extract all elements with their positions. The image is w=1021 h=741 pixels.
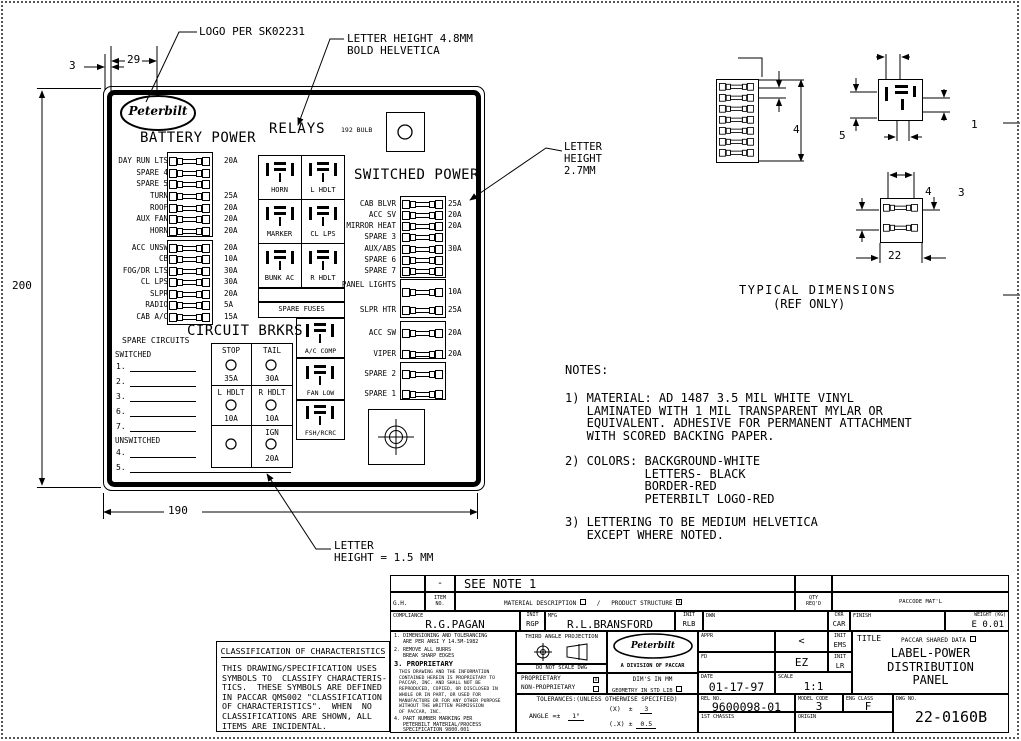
tb-paccode-cell: PACCODE MAT'L (832, 592, 1009, 611)
fuse-icon (402, 267, 443, 276)
classification-title: CLASSIFICATION OF CHARACTERISTICS (217, 647, 389, 656)
typical-dimensions-caption: TYPICAL DIMENSIONS (739, 284, 896, 297)
relay-icon (266, 249, 294, 270)
fuse-amp-label: 30A (448, 244, 462, 253)
mfg-name: R.L.BRANSFORD (546, 619, 674, 631)
spare-line (130, 371, 196, 372)
init-lr: LR (829, 663, 851, 671)
relays-header: RELAYS (269, 122, 326, 138)
see-note-text: SEE NOTE 1 (464, 578, 536, 591)
third-angle-label: THIRD ANGLE PROJECTION (517, 634, 606, 640)
letter-height-15-callout: LETTER HEIGHT = 1.5 MM (334, 540, 433, 565)
fuse-row: CAB BLVR25A (330, 199, 482, 210)
breaker-name-label: L HDLT (211, 389, 251, 397)
date-value: 01-17-97 (699, 681, 774, 694)
tb-init-cell: INITLR (828, 652, 852, 672)
product-structure-checkbox: X (676, 599, 682, 605)
ckr-label: CKR (829, 613, 849, 619)
typical-dim-label: 1 (971, 119, 978, 131)
spare-line (130, 472, 291, 473)
relay-label: BUNK AC (258, 275, 301, 283)
spare-line-number: 1. (116, 363, 126, 372)
tol-angle-value: 1° (568, 712, 584, 721)
classification-body: THIS DRAWING/SPECIFICATION USES SYMBOLS … (222, 664, 387, 731)
relay-icon (306, 322, 334, 343)
tol-x-label: (X) ± (609, 705, 632, 713)
init-ems: EMS (829, 642, 851, 650)
init-rlb: RLB (676, 621, 702, 629)
tb-projection-cell: THIRD ANGLE PROJECTION (516, 631, 607, 664)
fuse-icon (169, 227, 210, 236)
breaker-amp-label: 20A (252, 455, 292, 463)
tb-logo-cell: Peterbilt A DIVISION OF PACCAR (607, 631, 698, 673)
fd-signature: EZ (776, 657, 827, 669)
non-proprietary-label: NON-PROPRIETARY (521, 684, 575, 691)
drawing-sheet: LOGO PER SK02231 LETTER HEIGHT 4.8MM BOL… (0, 0, 1021, 741)
tb-see-note-cell: SEE NOTE 1 (455, 575, 795, 592)
tb-tolerances-cell: TOLERANCES:(UNLESS OTHERWISE SPECIFIED) … (516, 694, 698, 733)
tolerances-header: TOLERANCES:(UNLESS OTHERWISE SPECIFIED) (517, 697, 697, 704)
division-of-paccar-label: A DIVISION OF PACCAR (608, 664, 697, 670)
relay-icon (306, 404, 334, 425)
proprietary-row: PROPRIETARY (521, 676, 561, 683)
qty-reqd-label: QTY REQ'D (796, 596, 831, 607)
fuse-label: AUX FAN (104, 214, 168, 223)
item-no-label: ITEM NO. (426, 596, 454, 607)
relay-label: FAN LOW (296, 390, 345, 397)
appr-label: APPR (701, 633, 713, 639)
tb-model-cell: MODEL CODE3 (795, 694, 843, 712)
spare-line (130, 386, 196, 387)
fuse-icon (169, 180, 210, 189)
relay-icon (266, 205, 294, 226)
note-2: 2) COLORS: BACKGROUND-WHITE LETTERS- BLA… (565, 455, 775, 505)
relay-grid-divider (301, 155, 302, 288)
relay-label: FSH/RCRC (296, 430, 345, 437)
dwg-no-value: 22-0160B (894, 709, 1008, 726)
spare-line-number: 3. (116, 393, 126, 402)
tb-notes-cell: 1. DIMENSIONING AND TOLERANCING ARE PER … (390, 631, 516, 733)
spare-line-number: 2. (116, 378, 126, 387)
letter-height-48-callout: LETTER HEIGHT 4.8MM BOLD HELVETICA (347, 33, 473, 58)
first-chassis-label: 1ST CHASSIS (701, 714, 734, 720)
tb-cell (832, 575, 1009, 592)
breaker-name-label: R HDLT (252, 389, 292, 397)
relay-icon (309, 161, 337, 182)
breaker-amp-label: 10A (211, 415, 251, 423)
fuse-label: SLPR HTR (330, 305, 396, 314)
material-checkbox (580, 599, 586, 605)
tol-x-value: 3 (640, 705, 652, 714)
relay-label: A/C COMP (296, 348, 345, 355)
title-label: TITLE (857, 635, 881, 644)
spare-line (130, 457, 196, 458)
unswitched-label: UNSWITCHED (115, 437, 160, 445)
fuse-amp-label: 25A (448, 199, 462, 208)
weight-label: WEIGHT (KG) (974, 613, 1006, 618)
shared-data-row: PACCAR SHARED DATA (901, 636, 976, 645)
fuse-row: AUX/ABS30A (330, 244, 482, 255)
breaker-table-divider (211, 425, 293, 426)
fuse-icon (402, 370, 443, 379)
tb-date-cell: DATE01-17-97 (698, 672, 775, 694)
proprietary-label: PROPRIETARY (521, 675, 561, 682)
fuse-icon (402, 233, 443, 242)
tb-cell (390, 575, 425, 592)
fuse-amp-label: 20A (224, 226, 238, 235)
tb-material-cell: MATERIAL DESCRIPTION / PRODUCT STRUCTURE… (455, 592, 795, 611)
fuse-label: AUX/ABS (330, 244, 396, 253)
typical-dim-label: 5 (839, 130, 846, 142)
breaker-table (211, 343, 293, 468)
fuse-label: DAY RUN LTS (104, 156, 168, 165)
dim-200-label: 200 (12, 280, 32, 292)
fuse-icon (169, 278, 210, 287)
product-structure-text: PRODUCT STRUCTURE (611, 600, 672, 607)
spare-line (130, 416, 196, 417)
tb-dims-cell: DIM'S IN MM GEOMETRY IN STD LIB (607, 673, 698, 694)
tb-weight-cell: WEIGHT (KG)E 0.01 (945, 611, 1009, 631)
fuse-label: SPARE 4 (104, 168, 168, 177)
fuse-label: ROOF (104, 203, 168, 212)
bulb-label: 192 BULB (341, 127, 372, 134)
fuse-amp-label: 5A (224, 300, 233, 309)
fuse-amp-label: 20A (448, 328, 462, 337)
shared-data-checkbox (970, 636, 976, 642)
fuse-amp-label: 20A (224, 289, 238, 298)
fuse-row: VIPER20A (330, 349, 482, 360)
fuse-label: SPARE 6 (330, 255, 396, 264)
fuse-amp-label: 20A (224, 156, 238, 165)
fuse-row: MIRROR HEAT20A (330, 221, 482, 232)
fuse-amp-label: 20A (448, 221, 462, 230)
fuse-icon (402, 306, 443, 315)
tb-fd-sig-cell: EZ (775, 652, 828, 672)
tb-cell (795, 575, 832, 592)
typical-dim-label: 22 (888, 250, 901, 262)
tb-eng-cell: ENG CLASSF (843, 694, 893, 712)
battery-power-header: BATTERY POWER (140, 131, 256, 147)
tb-init-cell: INITRLB (675, 611, 703, 631)
proprietary-checkbox: X (593, 677, 599, 683)
tb-proprietary-cell: PROPRIETARY X NON-PROPRIETARY (516, 673, 607, 694)
material-desc-text: MATERIAL DESCRIPTION (504, 600, 576, 607)
fuse-label: ACC SV (330, 210, 396, 219)
tb-qty-cell: QTY REQ'D (795, 592, 832, 611)
spare-line-number: 6. (116, 408, 126, 417)
fuse-row: SPARE 6 (330, 255, 482, 266)
spare-line-number: 7. (116, 423, 126, 432)
fuse-icon (169, 169, 210, 178)
fuse-amp-label: 10A (448, 287, 462, 296)
dim-29-label: 29 (125, 54, 142, 66)
fuse-row: SLPR HTR25A (330, 305, 482, 316)
switched-label: SWITCHED (115, 351, 151, 359)
scale-value: 1:1 (776, 681, 851, 693)
relay-icon (266, 161, 294, 182)
tb-origin-cell: ORIGIN (795, 712, 893, 733)
tb-dns-cell: DO NOT SCALE DWG (516, 664, 607, 673)
fuse-label: CAB A/C (104, 312, 168, 321)
tb-mfg-cell: MFGR.L.BRANSFORD (545, 611, 675, 631)
paccar-shared-data-label: PACCAR SHARED DATA (901, 637, 966, 644)
paccode-label: PACCODE MAT'L (833, 599, 1008, 605)
init-label: INIT (521, 613, 544, 619)
fuse-icon (169, 255, 210, 264)
logo-callout: LOGO PER SK02231 (199, 26, 305, 38)
init-rgp: RGP (521, 621, 544, 629)
do-not-scale-label: DO NOT SCALE DWG (517, 666, 606, 672)
relay-label: MARKER (258, 231, 301, 239)
fuse-amp-label: 20A (448, 210, 462, 219)
spare-circuits-header: SPARE CIRCUITS (122, 337, 189, 346)
tb-finish-cell: FINISH (850, 611, 945, 631)
breaker-name-label: IGN (252, 429, 292, 437)
circuit-brkrs-header: CIRCUIT BRKRS (187, 324, 303, 340)
fuse-amp-label: 25A (224, 191, 238, 200)
note-1: 1) MATERIAL: AD 1487 3.5 MIL WHITE VINYL… (565, 392, 912, 442)
fuse-label: SPARE 3 (330, 232, 396, 241)
note-3: 3) LETTERING TO BE MEDIUM HELVETICA EXCE… (565, 516, 818, 541)
fuse-label: CB (104, 254, 168, 263)
dim-190-label: 190 (166, 505, 190, 517)
fuse-row: SPARE 7 (330, 266, 482, 277)
fuse-label: PANEL LIGHTS (330, 281, 396, 289)
breaker-name-label: TAIL (252, 347, 292, 355)
typical-dim-label: 3 (958, 187, 965, 199)
classification-box: CLASSIFICATION OF CHARACTERISTICS THIS D… (216, 641, 390, 732)
fuse-icon (169, 157, 210, 166)
non-proprietary-row: NON-PROPRIETARY (521, 685, 575, 692)
fuse-label: CL LPS (104, 277, 168, 286)
tol-dx-value: 0.5 (636, 720, 656, 729)
dwg-no-label: DWG NO. (896, 696, 917, 702)
tol-angle-label: ANGLE =± (529, 712, 560, 720)
fuse-icon (169, 267, 210, 276)
spare-line (130, 431, 196, 432)
spare-line-number: 5. (116, 464, 126, 473)
weight-value: E 0.01 (971, 620, 1004, 630)
fuse-icon (402, 222, 443, 231)
slash: / (597, 600, 601, 607)
tb-appr-sig-cell: < (775, 631, 828, 652)
tb-note-3-heading: 3. PROPRIETARY (394, 661, 453, 669)
fuse-icon (402, 350, 443, 359)
fuse-icon (402, 288, 443, 297)
tb-init-cell: INITEMS (828, 631, 852, 652)
compliance-name: R.G.PAGAN (391, 619, 519, 631)
tb-fd-cell: FD (698, 652, 775, 672)
fuse-icon (402, 200, 443, 209)
tb-item-no-cell: ITEM NO. (425, 592, 455, 611)
fuse-row: SPARE 2 (330, 369, 482, 380)
fuse-row: ACC SW20A (330, 328, 482, 339)
third-angle-projection-icon (531, 642, 593, 662)
fuse-label: SLPR (104, 289, 168, 298)
breaker-amp-label: 10A (252, 415, 292, 423)
finish-label: FINISH (853, 613, 871, 619)
relay-label: HORN (258, 187, 301, 195)
switched-power-header: SWITCHED POWER (354, 168, 479, 184)
fuse-amp-label: 20A (224, 214, 238, 223)
fuse-label: SPARE 5 (104, 179, 168, 188)
relay-icon (306, 364, 334, 385)
breaker-amp-label: 30A (252, 375, 292, 383)
tb-rel-cell: REL NO.9600098-01 (698, 694, 795, 712)
origin-label: ORIGIN (798, 714, 816, 720)
init-label: INIT (676, 613, 702, 619)
fuse-icon (169, 301, 210, 310)
init-label: INIT (829, 655, 851, 661)
tol-dx-row: (.X) ± 0.5 (609, 721, 656, 728)
tb-note-4: 4. PART NUMBER MARKING PER PETERBILT MAT… (394, 717, 481, 734)
scale-label: SCALE (778, 674, 793, 680)
peterbilt-logo-small: Peterbilt (616, 641, 690, 651)
tb-note-1: 1. DIMENSIONING AND TOLERANCING ARE PER … (394, 634, 487, 645)
fuse-icon (402, 329, 443, 338)
fuse-icon (169, 313, 210, 322)
dim-3-label: 3 (69, 60, 76, 72)
gh-initials: G.H. (393, 601, 407, 608)
appr-signature: < (776, 636, 827, 647)
dwn-label: DWN (706, 613, 715, 619)
fuse-amp-label: 15A (224, 312, 238, 321)
tb-dwg-cell: DWG NO.22-0160B (893, 694, 1009, 733)
fuse-icon (402, 245, 443, 254)
fuse-label: FOG/DR LTS (104, 266, 168, 275)
fuse-amp-label: 20A (224, 203, 238, 212)
breaker-table-divider (251, 343, 252, 468)
tb-init-cell: INITRGP (520, 611, 545, 631)
tol-dx-label: (.X) ± (609, 720, 632, 728)
fuse-amp-label: 20A (224, 243, 238, 252)
tol-x-row: (X) ± 3 (609, 706, 652, 713)
tb-appr-cell: APPR (698, 631, 775, 652)
fd-label: FD (701, 654, 707, 660)
fuse-label: MIRROR HEAT (330, 221, 396, 230)
ref-only-caption: (REF ONLY) (773, 298, 845, 311)
spare-line-number: 4. (116, 449, 126, 458)
breaker-name-label: STOP (211, 347, 251, 355)
fuse-label: TURN (104, 191, 168, 200)
fuse-icon (169, 192, 210, 201)
breaker-table-divider (211, 385, 293, 386)
typical-dim-label: 4 (793, 124, 800, 136)
fuse-icon (169, 244, 210, 253)
tb-dwn-cell: DWN (703, 611, 828, 631)
drawing-title: LABEL-POWER DISTRIBUTION PANEL (853, 647, 1008, 688)
non-proprietary-checkbox (593, 686, 599, 692)
fuse-icon (402, 211, 443, 220)
dims-in-mm-label: DIM'S IN MM (608, 677, 697, 684)
tb-note-2: 2. REMOVE ALL BURRS BREAK SHARP EDGES (394, 648, 454, 659)
fuse-row: SPARE 3 (330, 232, 482, 243)
fuse-row: ACC SV20A (330, 210, 482, 221)
fuse-label: SPARE 7 (330, 266, 396, 275)
breaker-amp-label: 35A (211, 375, 251, 383)
init-label: INIT (829, 634, 851, 640)
relay-label: L HDLT (301, 187, 345, 195)
geometry-checkbox (676, 686, 682, 692)
classification-title-text: CLASSIFICATION OF CHARACTERISTICS (221, 646, 386, 658)
fuse-icon (169, 290, 210, 299)
fuse-amp-label: 10A (224, 254, 238, 263)
letter-height-27-callout: LETTER HEIGHT 2.7MM (564, 142, 602, 177)
fuse-icon (402, 390, 443, 399)
fuse-label: HORN (104, 226, 168, 235)
ckr-initials: CAR (829, 621, 849, 629)
tb-cell: - (425, 575, 455, 592)
fuse-icon (169, 215, 210, 224)
tb-note-3-body: THIS DRAWING AND THE INFORMATION CONTAIN… (399, 670, 501, 716)
fuse-row: PANEL LIGHTS10A (330, 283, 482, 303)
fuse-amp-label: 20A (448, 349, 462, 358)
spare-line (130, 401, 196, 402)
tb-title-cell: TITLE PACCAR SHARED DATA LABEL-POWER DIS… (852, 631, 1009, 694)
fuse-amp-label: 25A (448, 305, 462, 314)
material-desc-label: MATERIAL DESCRIPTION / PRODUCT STRUCTURE… (504, 599, 682, 608)
fuse-amp-label: 30A (224, 277, 238, 286)
fuse-icon (169, 204, 210, 213)
tb-ckr-cell: CKRCAR (828, 611, 850, 631)
notes-header: NOTES: (565, 364, 608, 377)
tol-angle-row: ANGLE =± 1° (529, 713, 584, 720)
tb-compliance-cell: COMPLIANCER.G.PAGAN (390, 611, 520, 631)
fuse-label: RADIO (104, 300, 168, 309)
tb-scale-cell: SCALE1:1 (775, 672, 852, 694)
fuse-label: CAB BLVR (330, 199, 396, 208)
tb-dash: - (426, 578, 454, 589)
peterbilt-logo: Peterbilt (122, 105, 194, 118)
fuse-amp-label: 30A (224, 266, 238, 275)
fuse-row: SPARE 1 (330, 389, 482, 400)
tb-chassis-cell: 1ST CHASSIS (698, 712, 795, 733)
fuse-icon (402, 256, 443, 265)
fuse-label: ACC UNSW (104, 243, 168, 252)
typical-dim-label: 4 (925, 186, 932, 198)
